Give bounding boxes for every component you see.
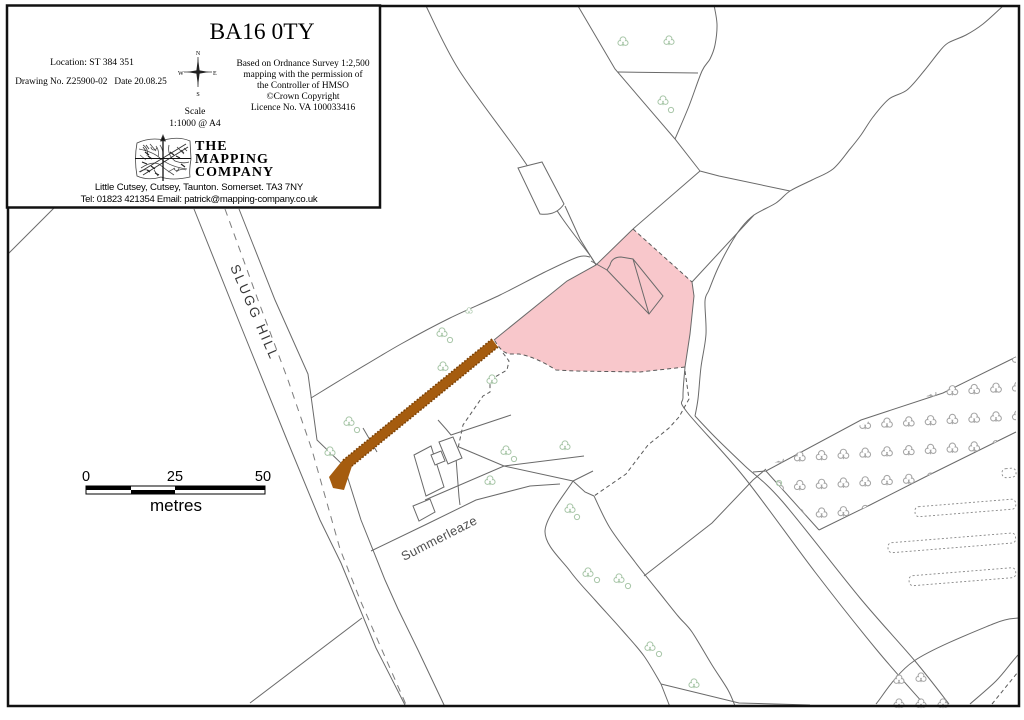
svg-text:1:1000 @ A4: 1:1000 @ A4 <box>169 118 221 129</box>
svg-text:the Controller of HMSO: the Controller of HMSO <box>257 80 349 91</box>
svg-text:W: W <box>178 71 184 77</box>
svg-text:metres: metres <box>150 496 202 515</box>
svg-text:S: S <box>196 92 199 98</box>
svg-text:©Crown Copyright: ©Crown Copyright <box>266 91 339 102</box>
svg-text:Licence No. VA 100033416: Licence No. VA 100033416 <box>251 103 356 113</box>
svg-text:Location: ST 384 351: Location: ST 384 351 <box>50 57 134 68</box>
svg-text:BA16 0TY: BA16 0TY <box>209 19 314 45</box>
svg-text:Based on Ordnance Survey 1:2,5: Based on Ordnance Survey 1:2,500 <box>236 59 369 69</box>
svg-text:COMPANY: COMPANY <box>195 165 274 180</box>
svg-text:0: 0 <box>82 469 90 485</box>
svg-text:mapping with the permission of: mapping with the permission of <box>243 69 363 80</box>
svg-text:Tel: 01823 421354 Email: patri: Tel: 01823 421354 Email: patrick@mapping… <box>81 194 318 205</box>
svg-text:25: 25 <box>167 469 183 485</box>
svg-text:N: N <box>196 51 201 57</box>
svg-text:E: E <box>213 71 217 77</box>
svg-text:Scale: Scale <box>185 106 206 117</box>
svg-text:Little Cutsey, Cutsey, Taunton: Little Cutsey, Cutsey, Taunton. Somerset… <box>95 182 304 193</box>
svg-text:Drawing No. Z25900-02 Date 2: Drawing No. Z25900-02 Date 20.08.25 <box>15 77 167 87</box>
svg-text:50: 50 <box>255 469 271 485</box>
